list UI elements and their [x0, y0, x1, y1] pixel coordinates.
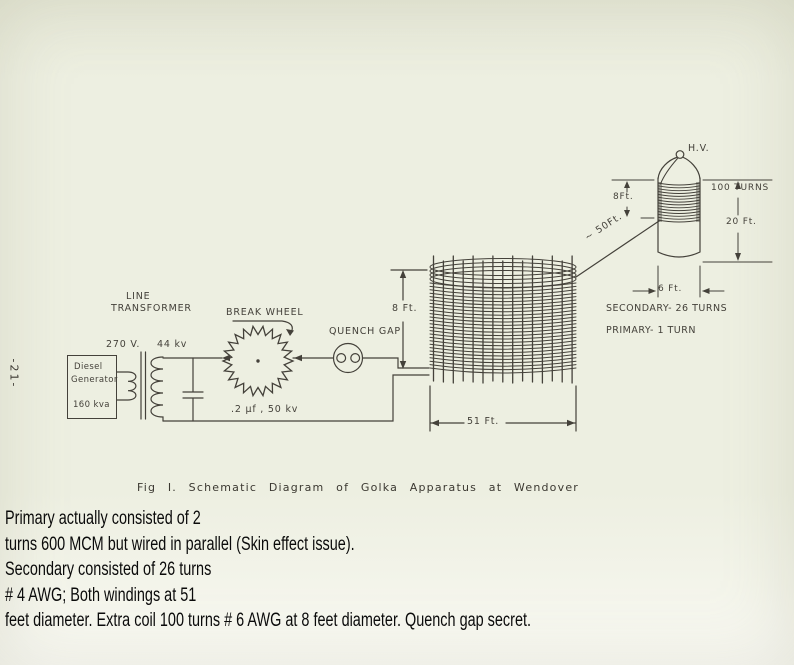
break-wheel-axle-dot	[256, 359, 259, 362]
break-wheel-symbol	[223, 321, 294, 396]
break-wheel-label: BREAK WHEEL	[226, 307, 304, 318]
main-coil-diameter-label: 51 Ft.	[467, 416, 499, 427]
main-coil-diameter-dimension	[430, 386, 576, 431]
extra-coil-turns-label: 100 TURNS	[711, 183, 769, 193]
diesel-generator-box: Diesel Generator 160 kva	[67, 355, 117, 419]
transformer-primary-winding	[117, 372, 136, 400]
primary-turns-label: PRIMARY- 1 TURN	[606, 325, 696, 336]
transformer-secondary-winding	[151, 357, 163, 421]
quench-gap-symbol	[334, 344, 363, 373]
extra-coil-height-label: 20 Ft.	[726, 217, 757, 227]
generator-label-line2: Generator	[71, 375, 118, 385]
main-coil-height-dimension	[391, 270, 427, 369]
scanned-schematic-page: Diesel Generator 160 kva LINE TRANSFORME…	[0, 0, 794, 665]
transformer-core	[141, 352, 146, 419]
quench-gap-label: QUENCH GAP	[329, 326, 401, 337]
extra-coil-diameter-label: 6 Ft.	[658, 284, 682, 294]
line-transformer-label-line1: LINE	[126, 291, 150, 302]
secondary-turns-label: SECONDARY- 26 TURNS	[606, 303, 727, 314]
note-line: # 4 AWG; Both windings at 51	[5, 583, 531, 609]
generator-label-line1: Diesel	[74, 362, 103, 372]
note-line: Secondary consisted of 26 turns	[5, 557, 531, 583]
line-transformer-label-line2: TRANSFORMER	[111, 303, 192, 314]
extra-coil-winding	[658, 183, 700, 222]
main-coil-drawing	[430, 256, 576, 383]
main-coil-height-label: 8 Ft.	[392, 303, 417, 314]
typed-annotations: Primary actually consisted of 2 turns 60…	[5, 506, 531, 634]
hv-terminal-label: H.V.	[688, 143, 710, 154]
page-number: -21-	[8, 351, 21, 397]
note-line: feet diameter. Extra coil 100 turns # 6 …	[5, 608, 531, 634]
transformer-symbol	[117, 352, 163, 421]
note-line: turns 600 MCM but wired in parallel (Ski…	[5, 532, 531, 558]
hv-lead-wire	[661, 159, 678, 185]
note-line: Primary actually consisted of 2	[5, 506, 531, 532]
extra-coil-winding-height-label: 8Ft.	[613, 192, 634, 202]
capacitor-symbol	[183, 358, 203, 421]
extra-coil-drawing	[658, 151, 700, 257]
hv-terminal-ball	[676, 151, 684, 159]
break-wheel-pointer-arrowhead	[286, 329, 294, 336]
input-voltage-label: 270 V.	[106, 339, 140, 350]
capacitor-label: .2 μf , 50 kv	[231, 404, 298, 415]
output-voltage-label: 44 kv	[157, 339, 187, 350]
figure-caption: Fig I. Schematic Diagram of Golka Appara…	[128, 481, 588, 494]
generator-rating-label: 160 kva	[73, 400, 110, 410]
